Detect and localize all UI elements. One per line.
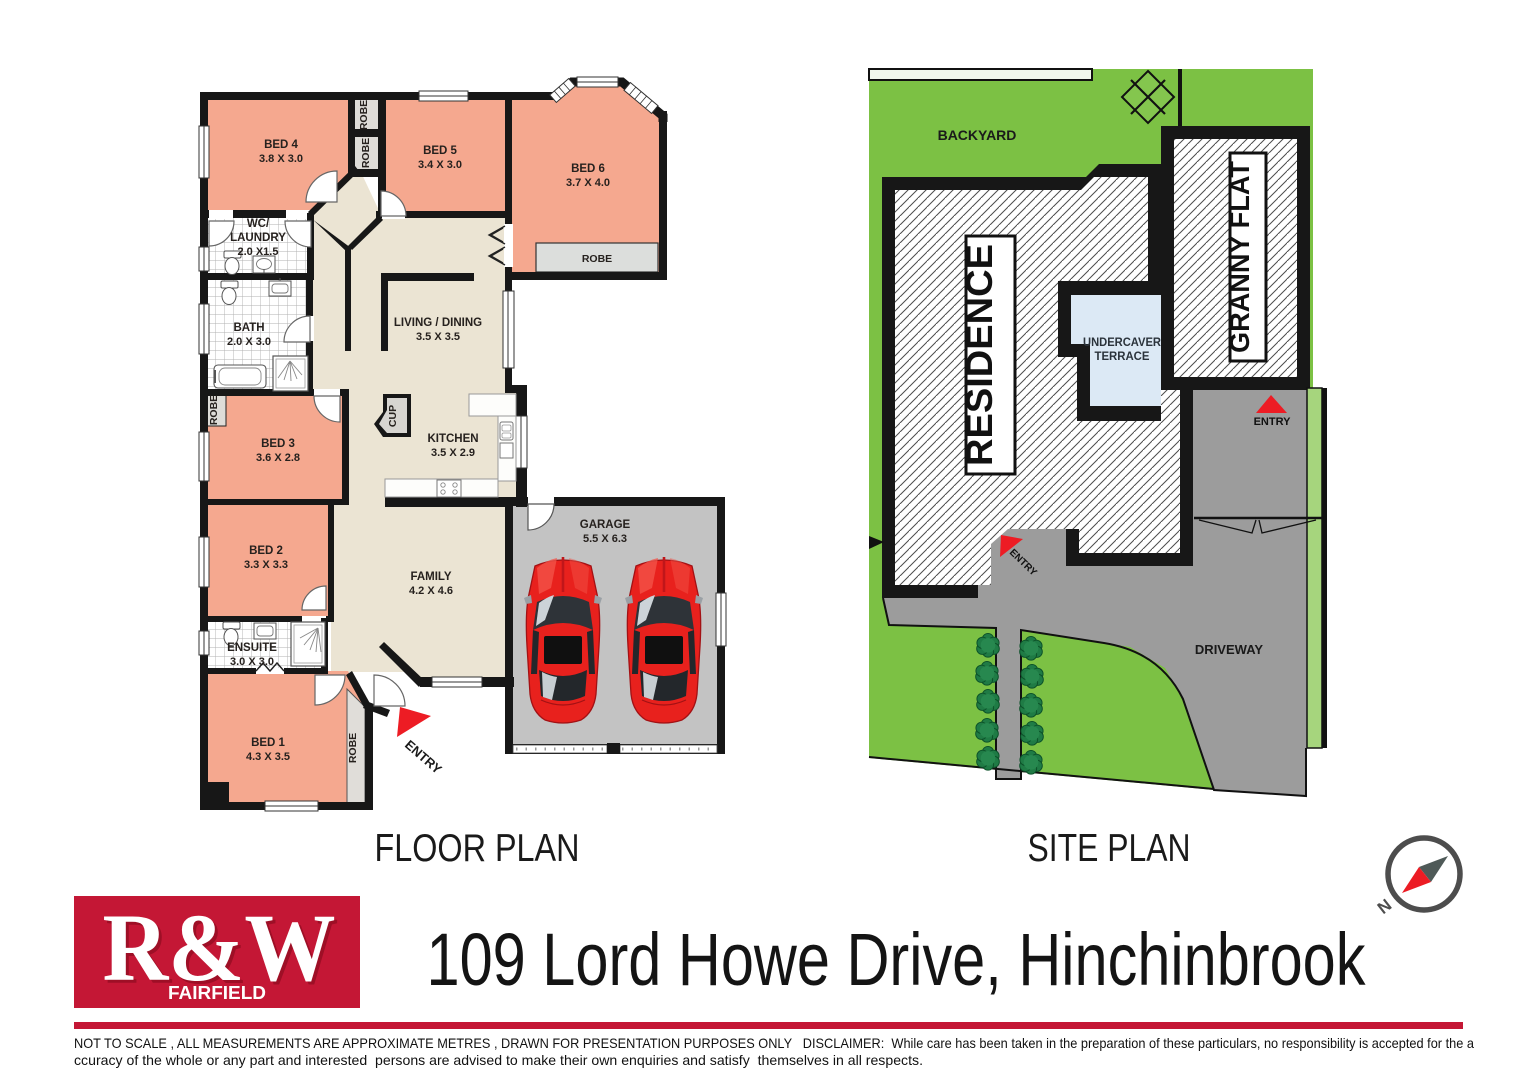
svg-text:DRIVEWAY: DRIVEWAY xyxy=(1195,642,1263,657)
svg-text:ENSUITE: ENSUITE xyxy=(227,642,277,654)
svg-text:LIVING / DINING: LIVING / DINING xyxy=(394,317,482,329)
svg-text:3.5 X 3.5: 3.5 X 3.5 xyxy=(416,331,460,343)
svg-text:LAUNDRY: LAUNDRY xyxy=(230,232,286,244)
svg-text:WC/: WC/ xyxy=(247,218,270,230)
svg-text:GRANNY FLAT: GRANNY FLAT xyxy=(1224,161,1255,353)
svg-text:FAIRFIELD: FAIRFIELD xyxy=(168,983,266,1003)
svg-text:BED 6: BED 6 xyxy=(571,163,605,175)
svg-text:GARAGE: GARAGE xyxy=(580,519,631,531)
svg-text:UNDERCAVER: UNDERCAVER xyxy=(1083,335,1161,349)
svg-text:ROBE: ROBE xyxy=(360,138,372,168)
svg-text:CUP: CUP xyxy=(387,405,399,427)
svg-text:ROBE: ROBE xyxy=(582,253,612,265)
svg-text:ROBE: ROBE xyxy=(208,395,220,425)
svg-text:ccuracy of the whole or any pa: ccuracy of the whole or any part and int… xyxy=(74,1052,923,1068)
svg-text:BATH: BATH xyxy=(233,322,264,334)
svg-text:RESIDENCE: RESIDENCE xyxy=(959,244,1000,466)
svg-text:BED 3: BED 3 xyxy=(261,438,295,450)
svg-text:BED 1: BED 1 xyxy=(251,737,285,749)
svg-text:2.0 X1.5: 2.0 X1.5 xyxy=(238,246,279,258)
svg-text:TERRACE: TERRACE xyxy=(1095,349,1150,363)
svg-text:3.0 X 3.0: 3.0 X 3.0 xyxy=(230,656,274,668)
svg-text:5.5 X 6.3: 5.5 X 6.3 xyxy=(583,533,627,545)
svg-text:ENTRY: ENTRY xyxy=(1254,416,1292,428)
svg-text:BED 5: BED 5 xyxy=(423,145,457,157)
svg-text:SITE PLAN: SITE PLAN xyxy=(1028,827,1191,870)
svg-text:NOT TO SCALE , ALL MEASUREMENT: NOT TO SCALE , ALL MEASUREMENTS ARE APPR… xyxy=(74,1035,1474,1051)
svg-text:3.7 X 4.0: 3.7 X 4.0 xyxy=(566,177,610,189)
svg-text:BED 2: BED 2 xyxy=(249,545,283,557)
svg-text:KITCHEN: KITCHEN xyxy=(427,433,478,445)
svg-text:ROBE: ROBE xyxy=(358,100,370,130)
svg-text:3.4 X 3.0: 3.4 X 3.0 xyxy=(418,159,462,171)
svg-text:BED 4: BED 4 xyxy=(264,139,298,151)
svg-text:3.5 X 2.9: 3.5 X 2.9 xyxy=(431,447,475,459)
svg-text:109 Lord Howe Drive, Hinchinbr: 109 Lord Howe Drive, Hinchinbrook xyxy=(427,918,1367,1001)
svg-text:3.8 X 3.0: 3.8 X 3.0 xyxy=(259,153,303,165)
svg-text:FLOOR PLAN: FLOOR PLAN xyxy=(375,827,580,870)
svg-text:2.0 X 3.0: 2.0 X 3.0 xyxy=(227,336,271,348)
svg-text:4.2 X 4.6: 4.2 X 4.6 xyxy=(409,585,453,597)
svg-text:ROBE: ROBE xyxy=(347,733,359,763)
svg-text:3.3 X 3.3: 3.3 X 3.3 xyxy=(244,559,288,571)
svg-text:BACKYARD: BACKYARD xyxy=(938,127,1017,143)
svg-text:4.3 X 3.5: 4.3 X 3.5 xyxy=(246,751,290,763)
svg-text:FAMILY: FAMILY xyxy=(410,571,451,583)
svg-text:3.6 X 2.8: 3.6 X 2.8 xyxy=(256,452,300,464)
